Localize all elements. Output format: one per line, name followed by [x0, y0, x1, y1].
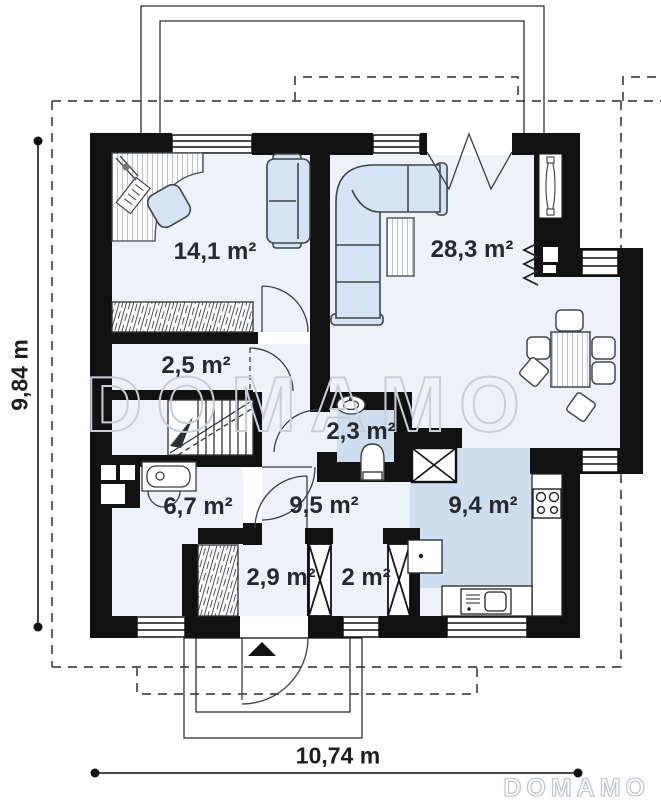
ventilation-shaft-icon	[412, 448, 456, 482]
window-icon	[447, 617, 527, 637]
watermark-corner: DOMAMO	[503, 774, 650, 800]
radiator-niche-icon	[539, 154, 562, 218]
room-label-hall: 9,5 m²	[289, 492, 358, 520]
window-icon	[137, 617, 185, 637]
stove-icon	[533, 489, 561, 518]
floor-plan-drawing: DOMAMO DOMAMO	[0, 0, 661, 800]
floor-plan-page: DOMAMO DOMAMO 14,1 m² 28,3 m² 2,5 m² 2,3…	[0, 0, 661, 800]
sofa	[267, 154, 310, 248]
room-label-corridor: 2,5 m²	[161, 352, 230, 380]
room-label-vestibule: 2,9 m²	[246, 564, 315, 592]
dimension-label-width: 10,74 m	[296, 743, 380, 770]
terrace-outline	[141, 6, 544, 133]
room-label-wc: 2,3 m²	[326, 418, 395, 446]
window-icon	[582, 250, 618, 275]
window-icon	[582, 450, 618, 472]
room-label-living: 28,3 m²	[431, 236, 514, 264]
dimension-label-height: 9,84 m	[7, 339, 34, 411]
coffee-table	[387, 218, 414, 276]
watermark-center: DOMAMO	[86, 360, 534, 448]
window-icon	[343, 617, 379, 637]
room-label-bedroom: 14,1 m²	[174, 238, 257, 266]
room-label-closet: 2 m²	[341, 564, 390, 592]
entrance-arrow-icon	[248, 642, 276, 656]
window-icon	[373, 135, 420, 153]
kitchen-sink-icon	[461, 589, 511, 614]
dimension-line-left	[34, 137, 43, 632]
dining-table	[551, 332, 590, 387]
toilet-icon	[361, 444, 384, 480]
room-label-kitchen: 9,4 m²	[448, 492, 517, 520]
room-label-utility: 6,7 m²	[163, 493, 232, 521]
meter-box-icon	[96, 460, 140, 508]
window-icon	[172, 135, 252, 153]
